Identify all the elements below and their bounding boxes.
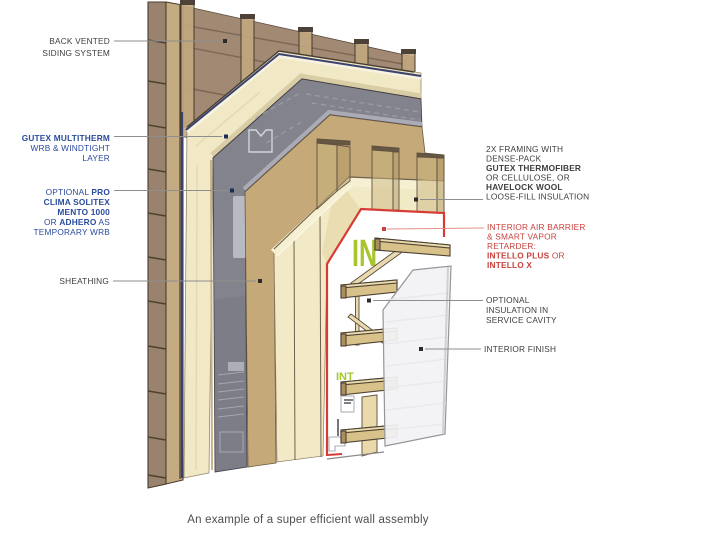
svg-text:INSULATION IN: INSULATION IN [486, 305, 548, 315]
svg-text:BACK VENTED: BACK VENTED [49, 36, 110, 46]
svg-text:HAVELOCK WOOL: HAVELOCK WOOL [486, 182, 563, 192]
svg-text:SERVICE CAVITY: SERVICE CAVITY [486, 315, 557, 325]
svg-text:TEMPORARY WRB: TEMPORARY WRB [33, 227, 110, 237]
svg-text:LAYER: LAYER [82, 153, 110, 163]
svg-text:& SMART VAPOR: & SMART VAPOR [487, 232, 557, 242]
svg-text:2X FRAMING WITH: 2X FRAMING WITH [486, 144, 563, 154]
svg-text:An example of a super efficien: An example of a super efficient wall ass… [187, 514, 429, 526]
svg-text:CLIMA SOLITEX: CLIMA SOLITEX [44, 197, 111, 207]
svg-text:GUTEX THERMOFIBER: GUTEX THERMOFIBER [486, 163, 581, 173]
svg-text:OPTIONAL PRO: OPTIONAL PRO [46, 187, 111, 197]
svg-text:MENTO 1000: MENTO 1000 [57, 207, 110, 217]
svg-text:DENSE-PACK: DENSE-PACK [486, 154, 542, 164]
svg-text:OR CELLULOSE, OR: OR CELLULOSE, OR [486, 173, 570, 183]
svg-text:SHEATHING: SHEATHING [59, 276, 109, 286]
svg-text:INTELLO X: INTELLO X [487, 260, 532, 270]
svg-text:INTERIOR AIR BARRIER: INTERIOR AIR BARRIER [487, 222, 586, 232]
svg-text:INTERIOR FINISH: INTERIOR FINISH [484, 344, 556, 354]
svg-text:INTELLO PLUS OR: INTELLO PLUS OR [487, 251, 565, 261]
svg-text:GUTEX MULTITHERM: GUTEX MULTITHERM [22, 133, 110, 143]
svg-text:OR ADHERO AS: OR ADHERO AS [44, 217, 110, 227]
svg-text:OPTIONAL: OPTIONAL [486, 295, 530, 305]
svg-text:LOOSE-FILL INSULATION: LOOSE-FILL INSULATION [486, 192, 589, 202]
svg-text:SIDING SYSTEM: SIDING SYSTEM [42, 48, 110, 58]
svg-text:RETARDER:: RETARDER: [487, 241, 536, 251]
svg-text:WRB & WINDTIGHT: WRB & WINDTIGHT [30, 143, 110, 153]
